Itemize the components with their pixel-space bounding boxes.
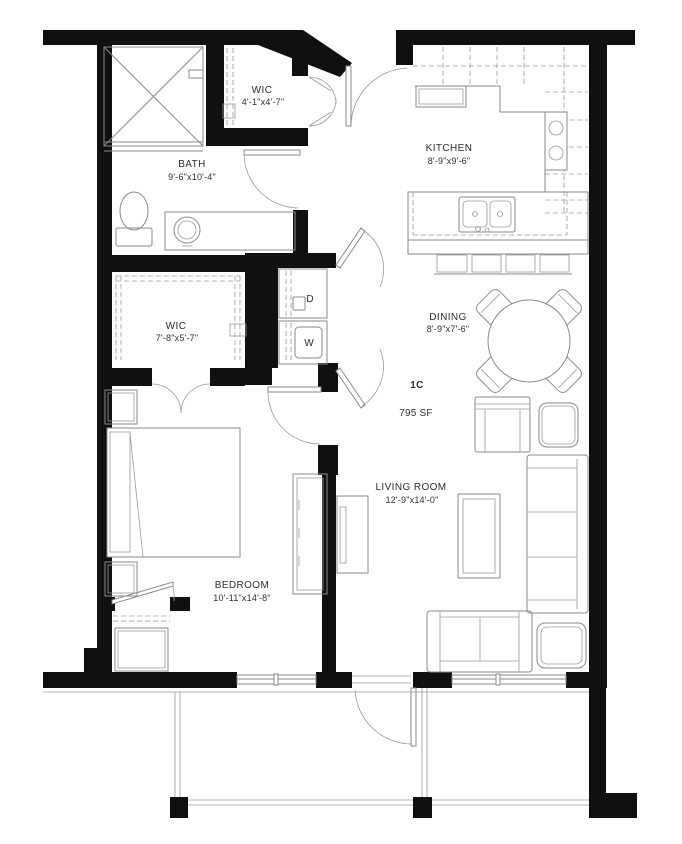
room-dims-dining: 8'-9"x7'-6" xyxy=(427,324,470,334)
coffee-table xyxy=(458,494,500,578)
vanity-sink xyxy=(165,212,295,250)
refrigerator xyxy=(416,86,466,107)
living-window xyxy=(452,674,566,685)
room-label-dining: DINING xyxy=(429,312,466,323)
room-label-wic-lower: WIC xyxy=(166,321,187,332)
laundry-door-lower xyxy=(336,349,383,408)
unit-label: 1C xyxy=(410,380,424,391)
unit-area: 795 SF xyxy=(399,408,432,419)
dresser xyxy=(293,474,327,594)
sofa xyxy=(527,455,588,613)
room-label-kitchen: KITCHEN xyxy=(426,143,473,154)
washer xyxy=(279,321,327,364)
room-label-bath: BATH xyxy=(178,159,206,170)
laundry-door-upper xyxy=(336,228,384,287)
entry-door xyxy=(346,66,407,126)
bath-door xyxy=(244,150,300,208)
windows xyxy=(237,674,566,685)
room-label-bedroom: BEDROOM xyxy=(215,580,269,591)
room-dims-bedroom: 10'-11"x14'-8" xyxy=(213,593,271,603)
bedroom-window xyxy=(237,674,316,685)
floor-plan-canvas: WIC 4'-1"x4'-7" BATH 9'-6"x10'-4" KITCHE… xyxy=(0,0,682,844)
balcony xyxy=(43,688,589,818)
ottoman xyxy=(537,623,586,668)
balcony-door-sill xyxy=(352,676,411,683)
laundry-closet xyxy=(279,269,327,364)
floor-plan-svg: WIC 4'-1"x4'-7" BATH 9'-6"x10'-4" KITCHE… xyxy=(0,0,682,844)
dining-table xyxy=(488,300,570,382)
balcony-door xyxy=(355,688,416,746)
room-dims-living: 12'-9"x14'-0" xyxy=(386,495,439,505)
range-cooktop xyxy=(545,112,567,170)
washer-label: W xyxy=(304,338,314,349)
armchair xyxy=(475,397,530,452)
bed xyxy=(107,428,240,557)
balcony-post xyxy=(170,797,188,818)
kitchen-sink xyxy=(459,197,515,232)
balcony-post xyxy=(413,797,432,818)
shower xyxy=(104,47,203,151)
bar-stools xyxy=(434,255,572,274)
wic-lower-shelving xyxy=(116,276,246,360)
side-table xyxy=(539,403,578,447)
loveseat xyxy=(427,611,532,672)
closet-interior xyxy=(113,616,170,671)
tv-console xyxy=(337,496,368,573)
room-label-wic-upper: WIC xyxy=(252,85,273,96)
dryer xyxy=(279,269,327,318)
bedroom-door xyxy=(268,387,321,444)
toilet xyxy=(116,192,152,246)
counter-edge xyxy=(415,86,545,192)
dining-furniture xyxy=(474,287,584,452)
wic-upper-double-doors xyxy=(309,77,336,126)
bath-fixtures xyxy=(104,47,295,250)
wic-lower-double-doors xyxy=(152,384,210,413)
room-dims-wic-lower: 7'-8"x5'-7" xyxy=(156,333,199,343)
wic-upper-shelving xyxy=(223,48,235,126)
bedroom-furniture xyxy=(105,390,327,671)
room-label-living: LIVING ROOM xyxy=(375,482,446,493)
room-dims-kitchen: 8'-9"x9'-6" xyxy=(428,156,471,166)
room-dims-wic-upper: 4'-1"x4'-7" xyxy=(242,97,285,107)
room-dims-bath: 9'-6"x10'-4" xyxy=(168,172,216,182)
dryer-label: D xyxy=(306,294,313,305)
doors xyxy=(112,66,416,746)
